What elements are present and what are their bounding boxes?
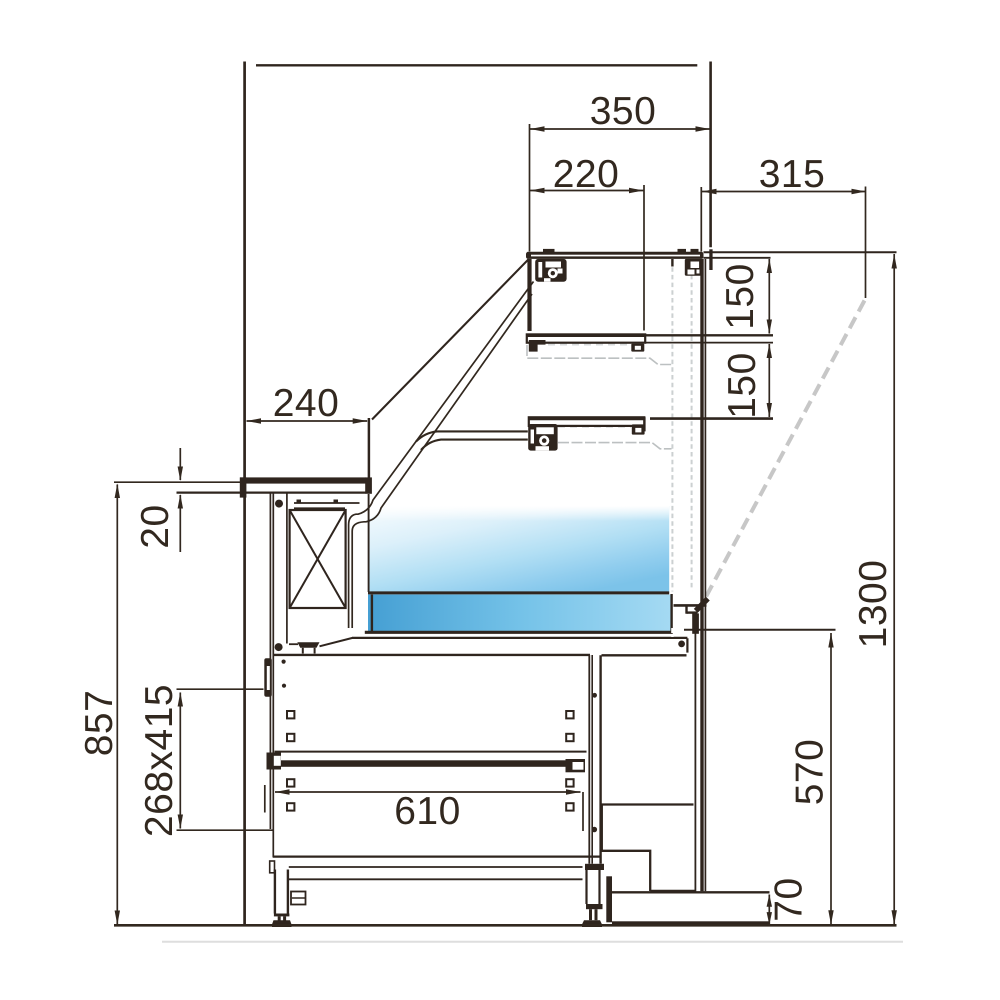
svg-text:268x415: 268x415 xyxy=(138,684,181,837)
svg-text:350: 350 xyxy=(590,90,657,133)
svg-text:150: 150 xyxy=(719,263,762,330)
svg-text:857: 857 xyxy=(78,690,121,757)
svg-text:220: 220 xyxy=(553,153,620,196)
svg-text:150: 150 xyxy=(721,352,764,419)
svg-text:1300: 1300 xyxy=(852,560,895,649)
svg-text:20: 20 xyxy=(134,504,177,548)
svg-text:570: 570 xyxy=(789,739,832,806)
svg-text:70: 70 xyxy=(768,877,811,921)
svg-text:315: 315 xyxy=(759,153,826,196)
svg-text:610: 610 xyxy=(394,790,461,833)
svg-text:240: 240 xyxy=(273,382,340,425)
